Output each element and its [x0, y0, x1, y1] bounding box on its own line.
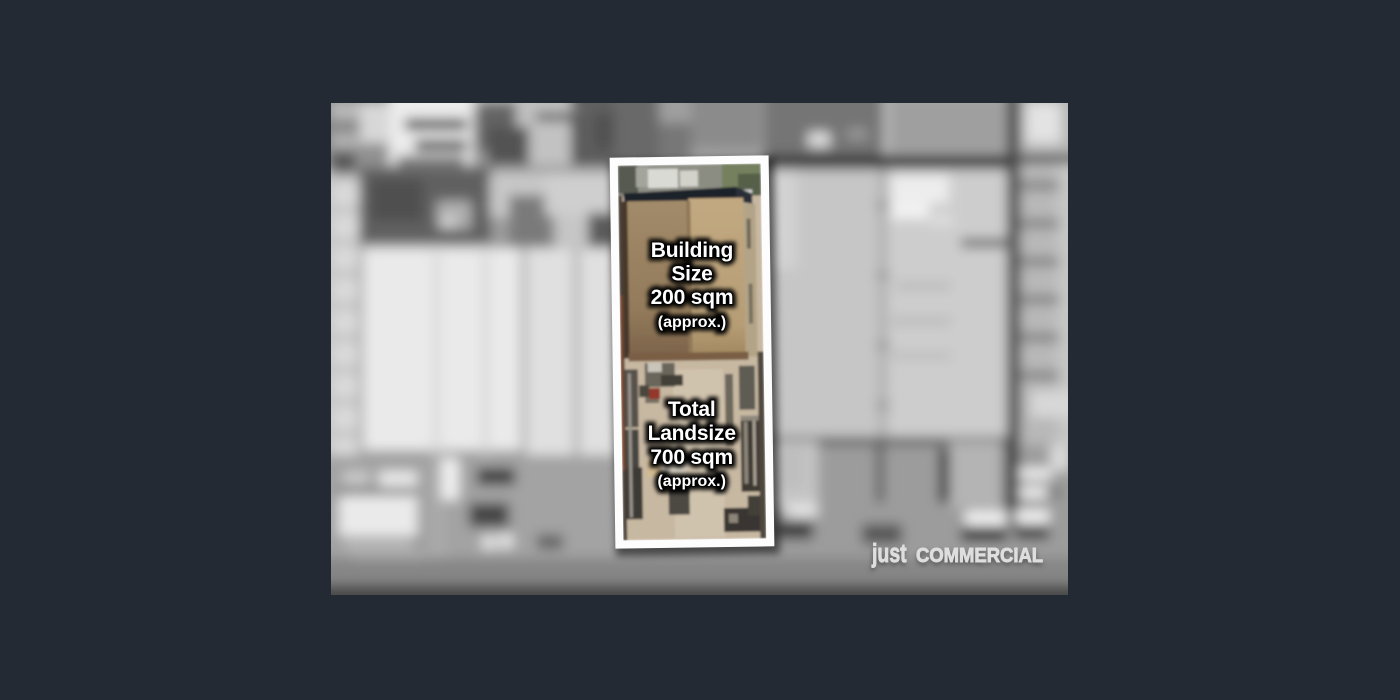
svg-text:Landsize: Landsize [648, 422, 736, 445]
svg-text:COMMERCIAL: COMMERCIAL [916, 544, 1043, 567]
svg-text:Total: Total [668, 398, 716, 421]
svg-text:(approx.): (approx.) [657, 473, 725, 490]
svg-text:200 sqm: 200 sqm [651, 286, 734, 309]
svg-text:just: just [871, 538, 907, 567]
svg-text:700 sqm: 700 sqm [650, 446, 733, 469]
svg-text:(approx.): (approx.) [658, 314, 726, 331]
svg-text:Building: Building [651, 239, 733, 262]
svg-text:Size: Size [671, 263, 712, 286]
